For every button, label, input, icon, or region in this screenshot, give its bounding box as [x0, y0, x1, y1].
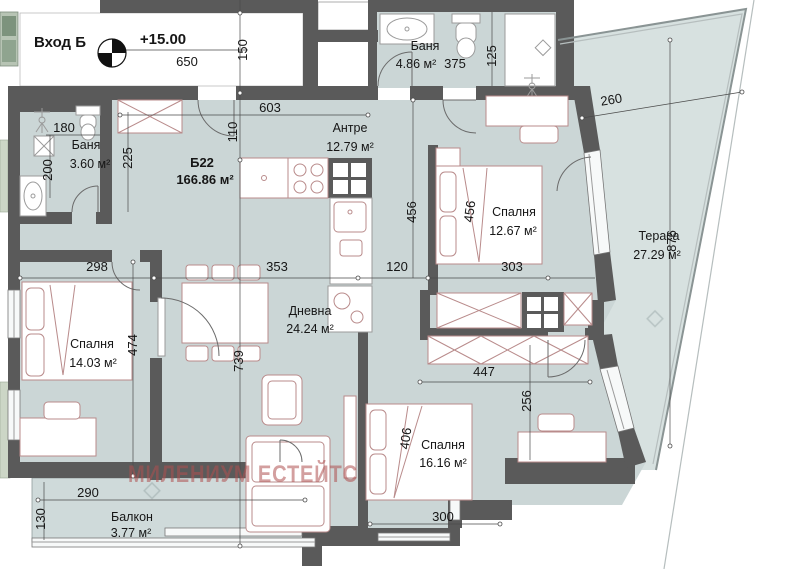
- wardrobe-hall: [118, 100, 182, 133]
- room-area-bedroom-right: 12.67 м²: [489, 224, 537, 238]
- dining-table: [182, 265, 268, 361]
- dim-353: 353: [266, 259, 288, 274]
- room-name-bedroom-bottom: Спалня: [421, 438, 465, 452]
- dim-130: 130: [33, 508, 48, 530]
- neighbor-fixture: [2, 16, 16, 36]
- chair: [538, 414, 574, 431]
- kitchen-sink-column: [328, 198, 372, 332]
- entrance-label: Вход Б: [34, 34, 86, 51]
- dim-125: 125: [484, 45, 499, 67]
- room-name-bedroom-left: Спалня: [70, 337, 114, 351]
- dim-876: 876: [664, 230, 679, 252]
- chair: [44, 402, 80, 419]
- dim-120: 120: [386, 259, 408, 274]
- elevation-marker-icon: [98, 39, 126, 67]
- dim-456-hall: 456: [404, 201, 419, 223]
- dim-456-bed: 456: [461, 200, 479, 223]
- duct-shaft-bedroom: [522, 292, 564, 332]
- dim-225: 225: [120, 147, 135, 169]
- dim-303: 303: [501, 259, 523, 274]
- armchair: [262, 375, 302, 425]
- chair: [520, 126, 558, 143]
- kitchen-counter: [240, 158, 328, 198]
- room-name-antre: Антре: [333, 121, 368, 135]
- room-area-bedroom-bottom: 16.16 м²: [419, 456, 467, 470]
- dim-447: 447: [473, 364, 495, 379]
- elevation-label: +15.00: [140, 31, 186, 48]
- unit-area: 166.86 м²: [176, 172, 234, 187]
- floor-plan: Вход Б +15.00 650 150 Баня 4.86 м² 375 1…: [0, 0, 800, 569]
- wardrobe-bedroom-right: [437, 293, 592, 328]
- dim-406: 406: [397, 427, 415, 450]
- room-name-bedroom-right: Спалня: [492, 205, 536, 219]
- dim-650: 650: [176, 54, 198, 69]
- room-area-bath-top: 4.86 м²: [396, 57, 437, 71]
- neighbor-fixture: [2, 40, 16, 62]
- room-name-balcony: Балкон: [111, 510, 153, 524]
- room-area-living: 24.24 м²: [286, 322, 334, 336]
- wardrobe-bedroom-bottom: [428, 336, 588, 364]
- washing-machine: [34, 136, 54, 156]
- room-area-bath-left: 3.60 м²: [70, 157, 111, 171]
- dim-300: 300: [432, 509, 454, 524]
- stairwell: [318, 2, 374, 30]
- duct-shaft-kitchen: [328, 158, 372, 198]
- dim-150: 150: [235, 39, 250, 61]
- dim-200: 200: [40, 159, 55, 181]
- door-leaf-bedroom-left: [158, 298, 165, 356]
- floor-plan-drawing: Вход Б +15.00 650 150 Баня 4.86 м² 375 1…: [0, 0, 800, 569]
- agency-watermark: МИЛЕНИУМ ЕСТЕЙТС: [128, 460, 358, 488]
- room-area-antre: 12.79 м²: [326, 140, 374, 154]
- dim-290: 290: [77, 485, 99, 500]
- room-area-balcony: 3.77 м²: [111, 526, 152, 540]
- dim-375: 375: [444, 56, 466, 71]
- dim-110: 110: [225, 122, 240, 143]
- nightstand: [436, 148, 460, 166]
- dim-180: 180: [53, 120, 75, 135]
- dim-298: 298: [86, 259, 108, 274]
- shower-bath-top: [505, 14, 555, 99]
- room-name-bath-top: Баня: [411, 39, 440, 53]
- bed-bedroom-bottom: [366, 404, 472, 500]
- room-name-living: Дневна: [289, 304, 332, 318]
- room-area-bedroom-left: 14.03 м²: [69, 356, 117, 370]
- unit-id: Б22: [190, 155, 214, 170]
- room-name-bath-left: Баня: [72, 138, 101, 152]
- sink-bath-left: [20, 176, 46, 216]
- dim-603: 603: [259, 100, 281, 115]
- neighbor-strip: [0, 140, 8, 212]
- dim-474: 474: [125, 334, 140, 356]
- dim-256: 256: [519, 390, 534, 412]
- dim-739: 739: [231, 350, 246, 372]
